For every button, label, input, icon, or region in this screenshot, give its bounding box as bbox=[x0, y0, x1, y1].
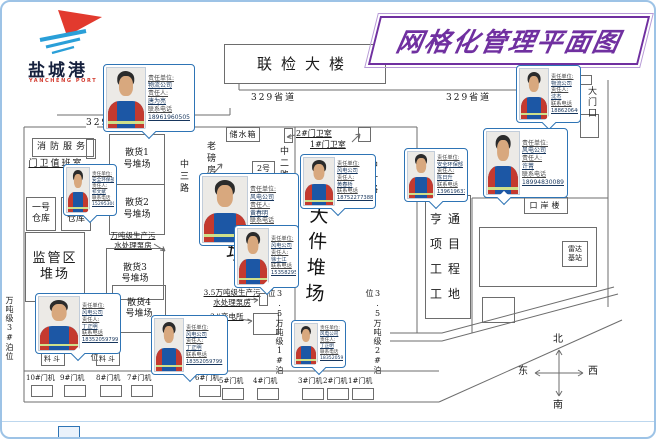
card-phone-value: 18352059799 bbox=[186, 359, 225, 366]
staff-card-safety-1: 责任单位: 安全环保部 责任人: 祁文斌 联系电话 15295300005 bbox=[63, 164, 117, 216]
staff-photo bbox=[237, 228, 269, 285]
port-logo-icon bbox=[20, 8, 120, 58]
card-person-value: 丁正明 bbox=[186, 345, 225, 352]
card-phone-label: 联系电话 bbox=[337, 188, 373, 195]
card-person-label: 责任人: bbox=[522, 155, 565, 163]
card-phone-value: 18352059799 bbox=[320, 356, 343, 362]
staff-card-logistics-2: 责任单位: 物流公司 责任人: 沈杰 联系电话 18862064000 bbox=[516, 65, 581, 123]
card-unit-label: 责任单位: bbox=[271, 236, 296, 243]
card-unit-label: 责任单位: bbox=[82, 303, 118, 310]
card-phone-label: 联系电话 bbox=[82, 330, 118, 337]
logo-subtitle: YANCHENG PORT bbox=[29, 78, 97, 84]
card-phone-value: 15358295555 bbox=[271, 270, 296, 277]
staff-photo bbox=[106, 67, 146, 129]
card-person-label: 责任人: bbox=[337, 175, 373, 182]
staff-card-wind-3: 责任单位: 风电公司 责任人: 黄春桥 联系电话 18752277388 bbox=[300, 154, 376, 209]
card-unit-label: 责任单位: bbox=[337, 161, 373, 168]
slide: 盐城港 YANCHENG PORT 网格化管理平面图 联检大楼 329省道 32… bbox=[0, 0, 656, 439]
card-person-label: 责任人: bbox=[271, 250, 296, 257]
page-title: 网格化管理平面图 bbox=[393, 22, 624, 59]
staff-card-wind-2: 责任单位: 风电公司 责任人: 徐士江 联系电话 15358295555 bbox=[234, 225, 299, 288]
card-phone-label: 联系电话 bbox=[250, 217, 296, 225]
staff-card-logistics-1: 责任单位: 物流公司 责任人: 唐为亮 联系电话 18961960505 bbox=[103, 64, 195, 132]
card-phone-value: 13961963735 bbox=[437, 189, 465, 196]
card-unit-label: 责任单位: bbox=[186, 325, 225, 332]
staff-card-wind-5: 责任单位: 风电公司 责任人: 丁正明 联系电话 18352059799 bbox=[35, 293, 121, 354]
card-person-label: 责任人: bbox=[551, 87, 578, 94]
card-person-label: 责任人: bbox=[148, 90, 192, 98]
card-phone-value: 18961960505 bbox=[148, 114, 192, 122]
card-unit-label: 责任单位: bbox=[250, 186, 296, 194]
staff-photo bbox=[519, 68, 549, 120]
card-person-value: 陈日升 bbox=[437, 175, 465, 182]
card-unit-label: 责任单位: bbox=[551, 74, 578, 81]
card-unit-value: 风电公司 bbox=[337, 168, 373, 175]
card-person-value: 许菁 bbox=[522, 163, 565, 171]
staff-photo bbox=[303, 157, 335, 206]
card-person-label: 责任人: bbox=[250, 202, 296, 210]
card-phone-value: 18862064000 bbox=[551, 108, 578, 115]
card-unit-label: 责任单位: bbox=[437, 155, 465, 162]
card-person-label: 责任人: bbox=[82, 317, 118, 324]
card-phone-label: 联系电话 bbox=[437, 182, 465, 189]
card-phone-value: 15295300005 bbox=[92, 202, 114, 208]
card-person-value: 唐为亮 bbox=[148, 98, 192, 106]
card-person-label: 责任人: bbox=[186, 338, 225, 345]
card-unit-value: 风电公司 bbox=[82, 310, 118, 317]
card-phone-value: 18752277388 bbox=[337, 195, 373, 202]
staff-photo bbox=[407, 151, 435, 199]
staff-card-wind-4: 责任单位: 风电公司 责任人: 许菁 联系电话 18994830089 bbox=[483, 128, 568, 198]
card-phone-value: 18352059799 bbox=[82, 337, 118, 344]
card-phone-label: 联系电话 bbox=[148, 106, 192, 114]
staff-photo bbox=[486, 131, 520, 195]
staff-photo bbox=[38, 296, 80, 351]
staff-photo bbox=[154, 318, 184, 372]
staff-card-safety-2: 责任单位: 安全环保部 责任人: 陈日升 联系电话 13961963735 bbox=[404, 148, 468, 202]
card-person-label: 责任人: bbox=[437, 168, 465, 175]
staff-card-wind-7: 责任单位: 风电公司 责任人: 丁正明 联系电话 18352059799 bbox=[291, 320, 346, 368]
card-phone-label: 联系电话 bbox=[522, 171, 565, 179]
card-phone-label: 联系电话 bbox=[186, 352, 225, 359]
card-unit-value: 风电公司 bbox=[271, 243, 296, 250]
page-title-box: 网格化管理平面图 bbox=[368, 16, 650, 65]
card-phone-value: 18994830089 bbox=[522, 179, 565, 187]
card-phone-label: 联系电话 bbox=[271, 263, 296, 270]
staff-photo bbox=[66, 167, 90, 213]
card-unit-value: 风电公司 bbox=[250, 194, 296, 202]
staff-card-wind-6: 责任单位: 风电公司 责任人: 丁正明 联系电话 18352059799 bbox=[151, 315, 228, 375]
card-person-value: 沈杰 bbox=[551, 94, 578, 101]
card-phone-label: 联系电话 bbox=[551, 101, 578, 108]
staff-photo bbox=[294, 323, 318, 365]
